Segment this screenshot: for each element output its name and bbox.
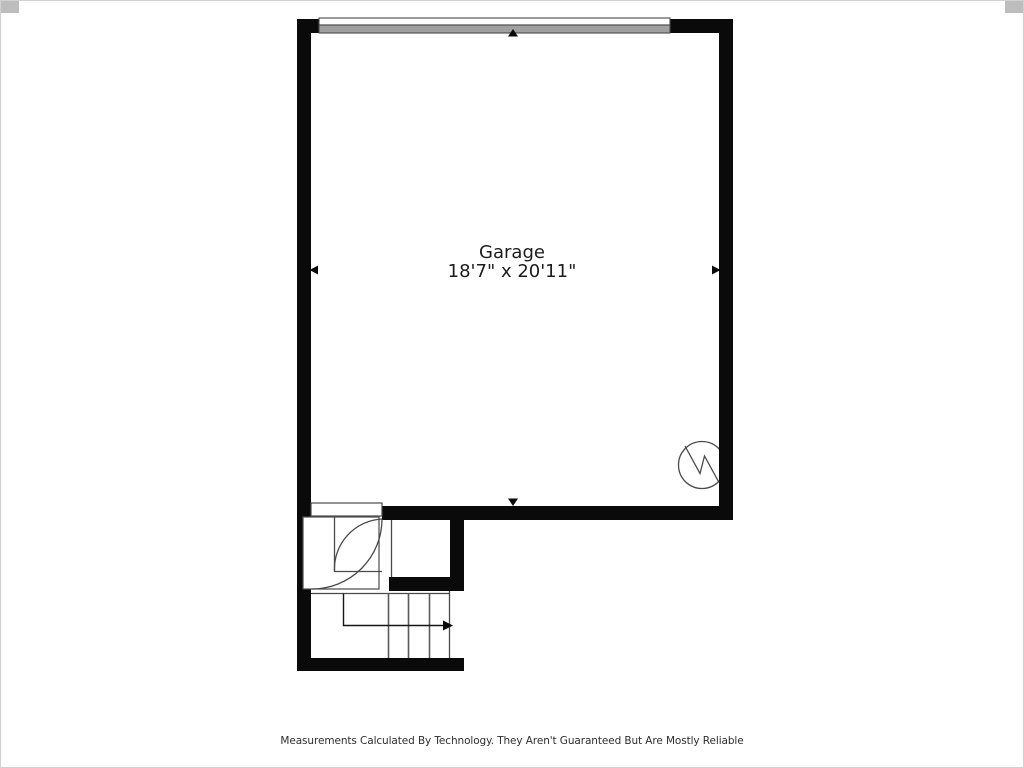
stairs-direction-arrow-icon <box>443 621 453 631</box>
disclaimer-text: Measurements Calculated By Technology. T… <box>1 735 1023 747</box>
wall-annex-bottom <box>297 658 464 671</box>
wall-right <box>719 19 733 520</box>
room-label: Garage 18'7" x 20'11" <box>312 243 712 281</box>
floorplan-page: Garage 18'7" x 20'11" Measurements Calcu… <box>0 0 1024 768</box>
wall-closet-bottom <box>389 577 464 591</box>
door-swing-icon <box>303 503 382 589</box>
floorplan-drawing <box>1 1 1024 768</box>
water-heater-icon <box>679 442 726 489</box>
stairs-icon <box>311 591 453 658</box>
wall-garage-bottom <box>382 506 733 520</box>
room-dimensions: 18'7" x 20'11" <box>312 262 712 281</box>
arrow-down-icon <box>508 499 518 507</box>
garage-door-icon <box>319 18 670 33</box>
room-name: Garage <box>312 243 712 262</box>
